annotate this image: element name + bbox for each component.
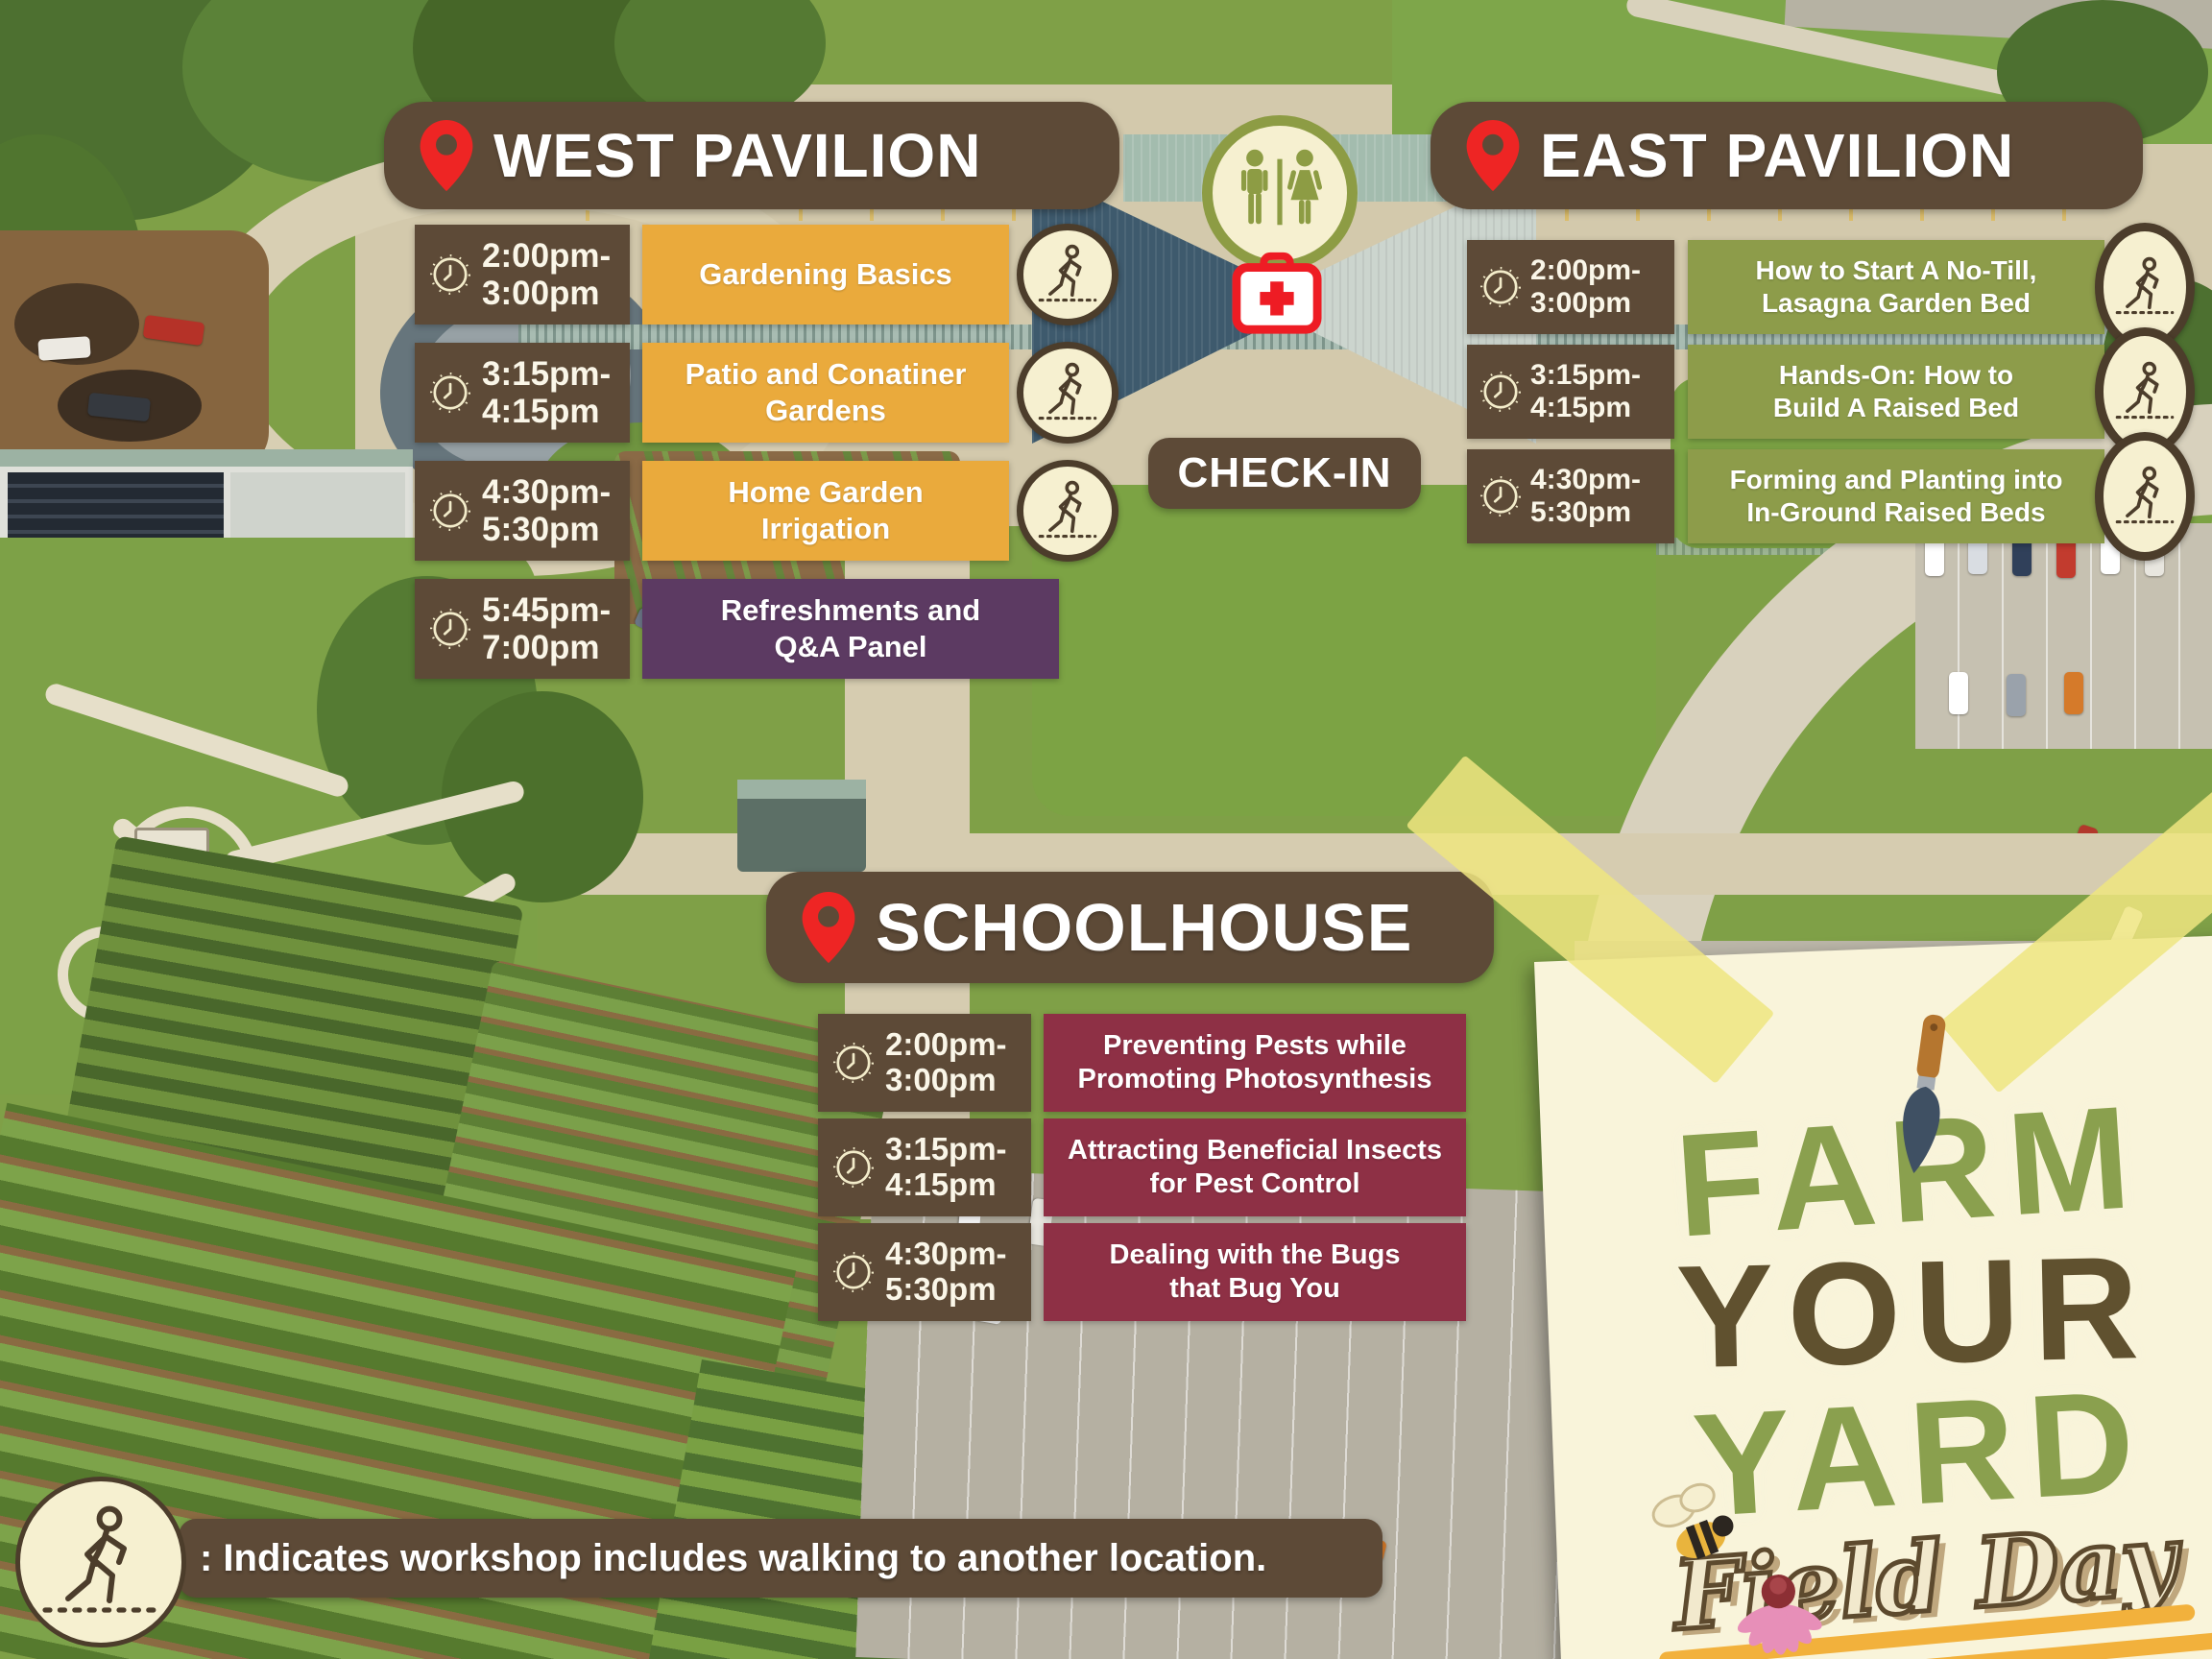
west-pavilion-schedule: 2:00pm- 3:00pmGardening Basics 3:15pm- 4… xyxy=(415,225,1118,697)
walking-person-icon xyxy=(2112,464,2177,529)
clock-icon xyxy=(428,489,472,533)
map-pin-icon xyxy=(1465,118,1521,193)
session-time: 2:00pm- 3:00pm xyxy=(415,225,630,325)
session-row: 3:15pm- 4:15pmPatio and Conatiner Garden… xyxy=(415,343,1118,443)
west-pavilion-header: WEST PAVILION xyxy=(384,102,1119,209)
session-time: 3:15pm- 4:15pm xyxy=(818,1118,1031,1216)
session-title: Home Garden Irrigation xyxy=(642,461,1009,561)
session-time: 3:15pm- 4:15pm xyxy=(415,343,630,443)
building-roof xyxy=(0,449,413,467)
restroom-icon xyxy=(1202,115,1358,271)
map-pin-icon xyxy=(801,890,856,965)
session-title: Dealing with the Bugs that Bug You xyxy=(1044,1223,1466,1321)
session-row: 5:45pm- 7:00pmRefreshments and Q&A Panel xyxy=(415,579,1118,679)
legend-bar: : Indicates workshop includes walking to… xyxy=(179,1519,1382,1598)
session-time: 4:30pm- 5:30pm xyxy=(1467,449,1674,543)
session-title: Gardening Basics xyxy=(642,225,1009,325)
schoolhouse-title: SCHOOLHOUSE xyxy=(876,889,1412,966)
clock-icon xyxy=(428,371,472,415)
walking-icon xyxy=(2095,432,2195,561)
session-title: Hands-On: How to Build A Raised Bed xyxy=(1688,345,2104,439)
east-pavilion-title: EAST PAVILION xyxy=(1540,120,2014,191)
clock-icon xyxy=(428,252,472,297)
session-row: 2:00pm- 3:00pmGardening Basics xyxy=(415,225,1118,325)
session-title: Preventing Pests while Promoting Photosy… xyxy=(1044,1014,1466,1112)
walking-person-icon xyxy=(2112,359,2177,424)
farm-field-day-map: WEST PAVILION EAST PAVILION SCHOOLHOUSE … xyxy=(0,0,2212,1659)
session-time: 4:30pm- 5:30pm xyxy=(415,461,630,561)
car xyxy=(1949,672,1968,714)
east-pavilion-header: EAST PAVILION xyxy=(1431,102,2143,209)
walking-icon xyxy=(1017,224,1118,325)
session-title: Forming and Planting into In-Ground Rais… xyxy=(1688,449,2104,543)
clock-icon xyxy=(1479,474,1523,518)
session-time: 3:15pm- 4:15pm xyxy=(1467,345,1674,439)
walking-person-icon xyxy=(1035,360,1100,425)
building-roof xyxy=(737,780,866,799)
session-time: 2:00pm- 3:00pm xyxy=(1467,240,1674,334)
session-row: 2:00pm- 3:00pmHow to Start A No-Till, La… xyxy=(1467,240,2195,334)
session-title: How to Start A No-Till, Lasagna Garden B… xyxy=(1688,240,2104,334)
session-title: Refreshments and Q&A Panel xyxy=(642,579,1059,679)
schoolhouse-header: SCHOOLHOUSE xyxy=(766,872,1494,983)
walking-person-icon xyxy=(2112,254,2177,320)
session-time: 2:00pm- 3:00pm xyxy=(818,1014,1031,1112)
car xyxy=(2064,672,2083,714)
check-in-text: CHECK-IN xyxy=(1177,449,1391,497)
clock-icon xyxy=(831,1250,876,1294)
session-row: 4:30pm- 5:30pmForming and Planting into … xyxy=(1467,449,2195,543)
session-title: Patio and Conatiner Gardens xyxy=(642,343,1009,443)
coneflower-icon xyxy=(1720,1544,1839,1659)
map-pin-icon xyxy=(419,118,474,193)
walking-icon xyxy=(1017,460,1118,562)
session-time: 5:45pm- 7:00pm xyxy=(415,579,630,679)
car xyxy=(2007,674,2026,716)
clock-icon xyxy=(1479,265,1523,309)
west-pavilion-title: WEST PAVILION xyxy=(493,120,981,191)
clock-icon xyxy=(1479,370,1523,414)
east-pavilion-schedule: 2:00pm- 3:00pmHow to Start A No-Till, La… xyxy=(1467,240,2195,554)
session-time: 4:30pm- 5:30pm xyxy=(818,1223,1031,1321)
session-row: 4:30pm- 5:30pmHome Garden Irrigation xyxy=(415,461,1118,561)
walking-person-icon xyxy=(1035,242,1100,307)
map-pin-icon xyxy=(419,118,474,193)
first-aid-icon xyxy=(1232,252,1322,336)
walking-person-icon xyxy=(1035,478,1100,543)
session-row: 3:15pm- 4:15pmHands-On: How to Build A R… xyxy=(1467,345,2195,439)
clock-icon xyxy=(831,1041,876,1085)
session-title: Attracting Beneficial Insects for Pest C… xyxy=(1044,1118,1466,1216)
check-in-label: CHECK-IN xyxy=(1148,438,1421,509)
session-row: 3:15pm- 4:15pmAttracting Beneficial Inse… xyxy=(818,1118,1466,1216)
truck xyxy=(37,336,90,361)
walking-icon xyxy=(1017,342,1118,444)
farm-your-yard-poster: FARM YOUR YARD Field Day xyxy=(1534,934,2212,1659)
clock-icon xyxy=(428,607,472,651)
schoolhouse-schedule: 2:00pm- 3:00pmPreventing Pests while Pro… xyxy=(818,1014,1466,1328)
clock-icon xyxy=(831,1145,876,1190)
session-row: 2:00pm- 3:00pmPreventing Pests while Pro… xyxy=(818,1014,1466,1112)
legend-text: : Indicates workshop includes walking to… xyxy=(179,1537,1266,1580)
map-pin-icon xyxy=(801,890,856,965)
map-pin-icon xyxy=(1465,118,1521,193)
session-row: 4:30pm- 5:30pmDealing with the Bugs that… xyxy=(818,1223,1466,1321)
legend-walking-icon xyxy=(15,1477,186,1647)
